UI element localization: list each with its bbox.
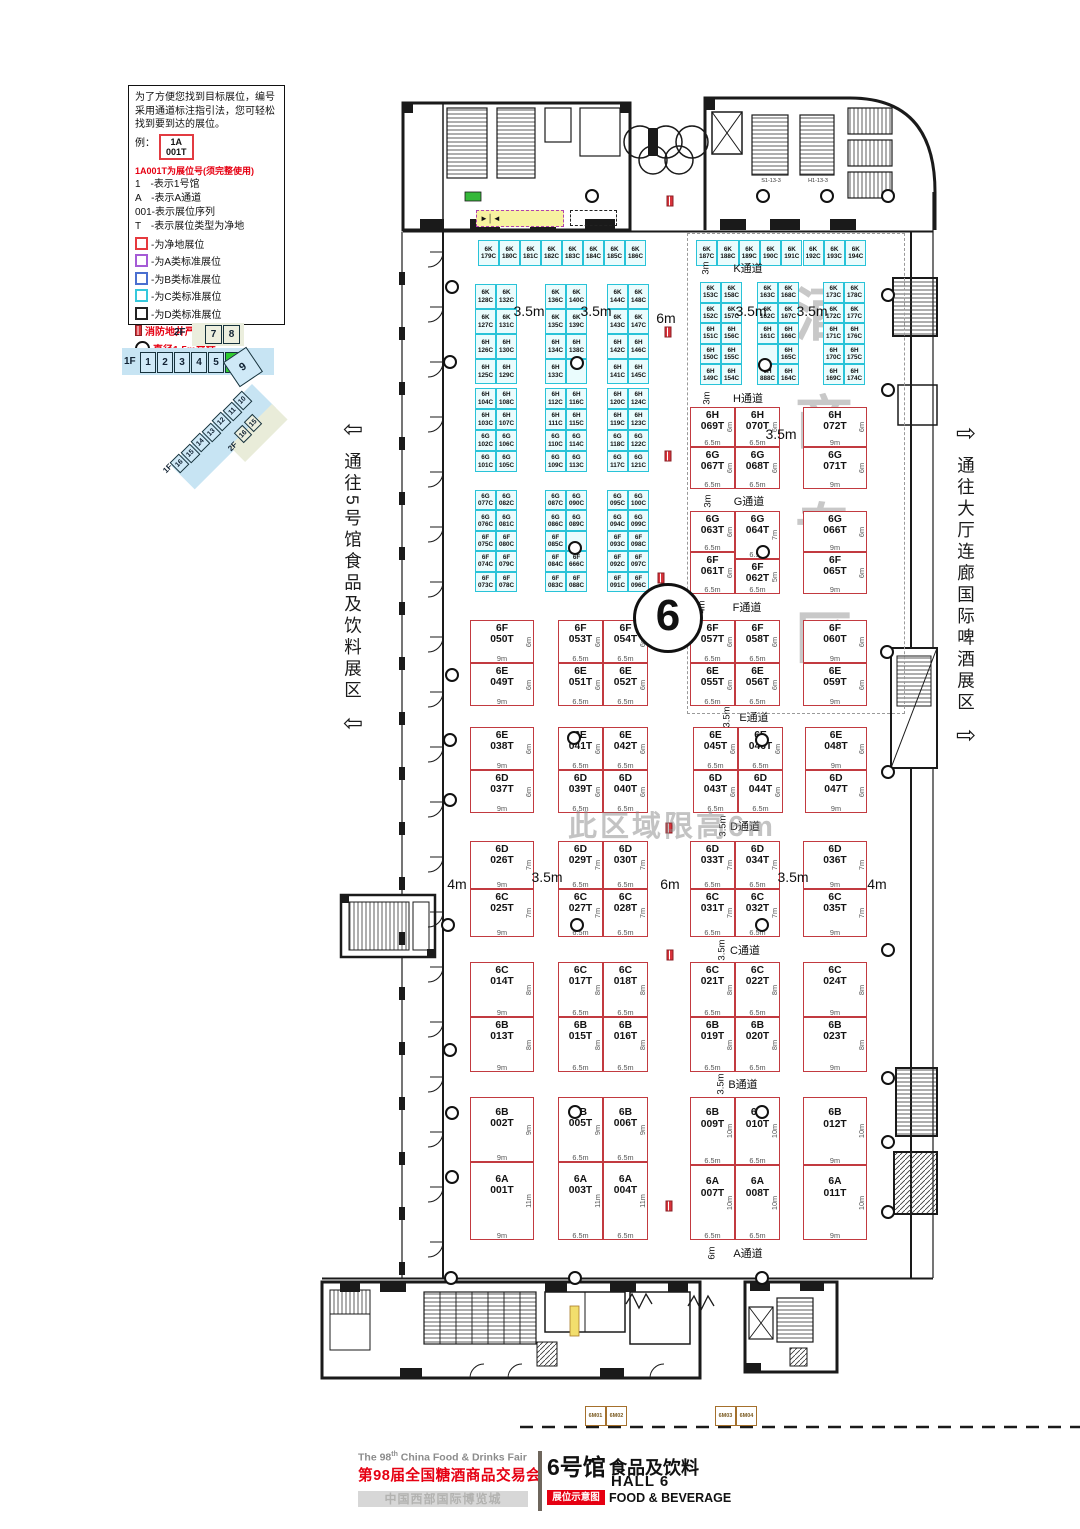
booth-126C: 6H126C xyxy=(475,334,496,359)
booth-123C: 6H123C xyxy=(628,409,649,430)
booth-125C: 6H125C xyxy=(475,359,496,384)
booth-075C: 6F075C xyxy=(475,531,496,551)
booth-118C: 6G118C xyxy=(607,430,628,451)
booth-022T: 6C022T6.5m8m xyxy=(735,962,780,1017)
legend-item: T -表示展位类型为净地 xyxy=(135,220,278,233)
booth-095C: 6G095C xyxy=(607,490,628,510)
booth-116C: 6H116C xyxy=(566,388,587,409)
booth-037T: 6D037T9m6m xyxy=(470,770,534,813)
pillar-column xyxy=(881,1071,895,1085)
fire-hydrant-icon xyxy=(667,196,674,207)
pillar-column xyxy=(568,1105,582,1119)
pillar-column xyxy=(568,541,582,555)
arrow-right-icon: ⇨ xyxy=(956,724,976,748)
legend-example-number: 001T xyxy=(166,147,187,157)
nav-hall-3: 3 xyxy=(174,352,190,373)
dimension-label: 3.5m xyxy=(777,869,808,885)
aisle-label-A通道: A通道 xyxy=(733,1245,762,1261)
legend-item: 1 -表示1号馆 xyxy=(135,178,278,191)
booth-108C: 6H108C xyxy=(496,388,517,409)
pillar-column xyxy=(567,731,581,745)
booth-129C: 6H129C xyxy=(496,359,517,384)
booth-186C: 6K186C xyxy=(625,240,646,266)
booth-077C: 6G077C xyxy=(475,490,496,510)
hall-title-cn: 6号馆 xyxy=(547,1448,606,1482)
arrow-left-icon: ⇦ xyxy=(343,712,363,736)
height-limit-watermark: 此区域限高6m xyxy=(568,803,776,845)
booth-024T: 6C024T9m8m xyxy=(803,962,867,1017)
booth-030T: 6D030T6.5m7m xyxy=(603,841,648,889)
aisle-width-label: 3.5m xyxy=(716,1073,727,1094)
swatch-label: -为A类标准展位 xyxy=(151,253,221,268)
hall-category-en: FOOD & BEVERAGE xyxy=(609,1491,731,1505)
booth-128C: 6K128C xyxy=(475,284,496,309)
booth-136C: 6K136C xyxy=(545,284,566,309)
booth-103C: 6H103C xyxy=(475,409,496,430)
booth-145C: 6H145C xyxy=(628,359,649,384)
booth-082C: 6G082C xyxy=(496,490,517,510)
booth-148C: 6K148C xyxy=(628,284,649,309)
booth-002T: 6B002T9m9m xyxy=(470,1097,534,1162)
booth-183C: 6K183C xyxy=(562,240,583,266)
booth-047T: 6D047T9m6m xyxy=(805,770,867,813)
arrow-right-icon: ⇨ xyxy=(956,422,976,446)
pillar-column xyxy=(820,189,834,203)
booth-028T: 6C028T6.5m7m xyxy=(603,889,648,937)
booth-036T: 6D036T9m7m xyxy=(803,841,867,889)
booth-007T: 6A007T6.5m10m xyxy=(690,1165,735,1240)
booth-092C: 6F092C xyxy=(607,551,628,571)
legend-swatch-row: -为C类标准展位 xyxy=(135,288,278,303)
corridor-label-right: ⇨ 通往大厅连廊国际啤酒展区 ⇨ xyxy=(948,422,984,748)
dimension-label: 3.5m xyxy=(580,303,611,319)
booth-181C: 6K181C xyxy=(520,240,541,266)
nav-2f-label: 2F xyxy=(174,327,186,338)
pillar-column xyxy=(445,668,459,682)
booth-105C: 6G105C xyxy=(496,451,517,472)
booth-101C: 6G101C xyxy=(475,451,496,472)
pillar-column xyxy=(570,356,584,370)
booth-111C: 6H111C xyxy=(545,409,566,430)
booth-096C: 6F096C xyxy=(628,572,649,592)
booth-120C: 6H120C xyxy=(607,388,628,409)
corridor-right-text: 通往大厅连廊国际啤酒展区 xyxy=(954,456,979,714)
fire-hydrant-icon xyxy=(666,1201,673,1212)
pillar-column xyxy=(441,918,455,932)
booth-099C: 6G099C xyxy=(628,510,649,530)
fire-hydrant-icon xyxy=(658,573,665,584)
booth-085C: 6F085C xyxy=(545,531,566,551)
floorplan-page: ►│◄ 6K179C6K180C6K181C6K182C6K183C6K184C… xyxy=(0,0,1080,1529)
pillar-column xyxy=(756,189,770,203)
nav-hall-5: 5 xyxy=(208,352,224,373)
dashed-strip xyxy=(570,210,617,226)
booth-109C: 6G109C xyxy=(545,451,566,472)
nav-hall-2: 2 xyxy=(157,352,173,373)
pillar-column xyxy=(443,733,457,747)
footer: The 98th China Food & Drinks Fair 第98届全国… xyxy=(0,1445,1080,1525)
booth-020T: 6B020T6.5m8m xyxy=(735,1017,780,1072)
booth-100C: 6G100C xyxy=(628,490,649,510)
booth-033T: 6D033T6.5m7m xyxy=(690,841,735,889)
pillar-column xyxy=(445,1106,459,1120)
booth-019T: 6B019T6.5m8m xyxy=(690,1017,735,1072)
pillar-column xyxy=(755,1105,769,1119)
booth-089C: 6G089C xyxy=(566,510,587,530)
booth-146C: 6H146C xyxy=(628,334,649,359)
fire-hydrant-icon xyxy=(665,327,672,338)
booth-031T: 6C031T6.5m7m xyxy=(690,889,735,937)
dimension-label: 4m xyxy=(867,876,886,892)
pillar-column xyxy=(881,1205,895,1219)
booth-003T: 6A003T6.5m11m xyxy=(558,1162,603,1240)
booth-113C: 6G113C xyxy=(566,451,587,472)
booth-107C: 6H107C xyxy=(496,409,517,430)
booth-014T: 6C014T9m8m xyxy=(470,962,534,1017)
pillar-column xyxy=(445,280,459,294)
booth-029T: 6D029T6.5m7m xyxy=(558,841,603,889)
nav-hall-8: 8 xyxy=(223,325,240,344)
booth-009T: 6B009T6.5m10m xyxy=(690,1097,735,1165)
swatch-label: -为C类标准展位 xyxy=(151,288,222,303)
aisle-label-C通道: C通道 xyxy=(730,942,760,958)
pillar-column xyxy=(881,943,895,957)
booth-026T: 6D026T9m7m xyxy=(470,841,534,889)
legend-swatch-row: -为A类标准展位 xyxy=(135,253,278,268)
legend-swatch-row: -为D类标准展位 xyxy=(135,306,278,321)
booth-004T: 6A004T6.5m11m xyxy=(603,1162,648,1240)
booth-015T: 6B015T6.5m8m xyxy=(558,1017,603,1072)
corridor-label-left: ⇦ 通往5号馆食品及饮料展区 ⇦ xyxy=(336,418,370,736)
hall-title-en: HALL 6 xyxy=(611,1473,669,1490)
booth-119C: 6H119C xyxy=(607,409,628,430)
booth-184C: 6K184C xyxy=(583,240,604,266)
dimension-label: 3.5m xyxy=(531,869,562,885)
service-box-6M03: 6M03 xyxy=(715,1406,736,1426)
stairwell-code: H1-13-3 xyxy=(808,178,828,184)
legend-items: 1 -表示1号馆A -表示A通道001-表示展位序列T -表示展位类型为净地 xyxy=(129,178,284,233)
legend-swatch-row: -为净地展位 xyxy=(135,236,278,251)
booth-type-swatch xyxy=(135,237,148,250)
booth-180C: 6K180C xyxy=(499,240,520,266)
pillar-column xyxy=(755,733,769,747)
booth-083C: 6F083C xyxy=(545,572,566,592)
hall-number-circle: 6 xyxy=(633,583,703,653)
booth-114C: 6G114C xyxy=(566,430,587,451)
service-box-6M01: 6M01 xyxy=(585,1406,606,1426)
booth-type-swatch xyxy=(135,307,148,320)
plan-type-badge: 展位示意图 xyxy=(547,1490,605,1505)
booth-110C: 6G110C xyxy=(545,430,566,451)
booth-021T: 6C021T6.5m8m xyxy=(690,962,735,1017)
booth-051T: 6E051T6.5m6m xyxy=(558,663,603,706)
legend-example-hall: 1A xyxy=(171,137,183,147)
booth-035T: 6C035T9m7m xyxy=(803,889,867,937)
booth-098C: 6F098C xyxy=(628,531,649,551)
booth-080C: 6F080C xyxy=(496,531,517,551)
legend-swatches: -为净地展位-为A类标准展位-为B类标准展位-为C类标准展位-为D类标准展位 xyxy=(129,236,284,321)
booth-185C: 6K185C xyxy=(604,240,625,266)
pillar-column xyxy=(443,355,457,369)
booth-182C: 6K182C xyxy=(541,240,562,266)
booth-127C: 6K127C xyxy=(475,309,496,334)
pillar-column xyxy=(568,1271,582,1285)
legend-item: A -表示A通道 xyxy=(135,192,278,205)
legend-example-label: 例： xyxy=(135,134,155,149)
stairwell-code: S1-13-3 xyxy=(761,178,781,184)
booth-179C: 6K179C xyxy=(478,240,499,266)
booth-122C: 6G122C xyxy=(628,430,649,451)
booth-091C: 6F091C xyxy=(607,572,628,592)
pillar-column xyxy=(443,1043,457,1057)
booth-045T: 6E045T6.5m6m xyxy=(693,727,738,770)
booth-053T: 6F053T6.5m6m xyxy=(558,620,603,663)
booth-147C: 6K147C xyxy=(628,309,649,334)
swatch-label: -为B类标准展位 xyxy=(151,271,221,286)
booth-001T: 6A001T9m11m xyxy=(470,1162,534,1240)
aisle-width-label: 6m xyxy=(707,1246,718,1259)
fire-hydrant-icon xyxy=(667,950,674,961)
booth-017T: 6C017T6.5m8m xyxy=(558,962,603,1017)
booth-121C: 6G121C xyxy=(628,451,649,472)
hall-navigator: 2F 1F 7812345691011121314151615161F2F xyxy=(118,320,298,485)
booth-013T: 6B013T9m8m xyxy=(470,1017,534,1072)
booth-type-swatch xyxy=(135,289,148,302)
nav-hall-7: 7 xyxy=(205,325,222,344)
fire-hydrant-icon xyxy=(665,451,672,462)
booth-117C: 6G117C xyxy=(607,451,628,472)
service-box-6M02: 6M02 xyxy=(606,1406,627,1426)
booth-052T: 6E052T6.5m6m xyxy=(603,663,648,706)
legend-panel: 为了方便您找到目标展位，编号采用通道标注指引法，您可轻松找到要到达的展位。 例：… xyxy=(128,85,285,325)
booth-141C: 6H141C xyxy=(607,359,628,384)
booth-type-swatch xyxy=(135,272,148,285)
booth-050T: 6F050T9m6m xyxy=(470,620,534,663)
booth-135C: 6K135C xyxy=(545,309,566,334)
booth-130C: 6H130C xyxy=(496,334,517,359)
booth-081C: 6G081C xyxy=(496,510,517,530)
booth-088C: 6F088C xyxy=(566,572,587,592)
booth-079C: 6F079C xyxy=(496,551,517,571)
booth-018T: 6C018T6.5m8m xyxy=(603,962,648,1017)
booth-006T: 6B006T6.5m9m xyxy=(603,1097,648,1162)
legend-swatch-row: -为B类标准展位 xyxy=(135,271,278,286)
booth-078C: 6F078C xyxy=(496,572,517,592)
pillar-column xyxy=(881,1135,895,1149)
booth-048T: 6E048T9m6m xyxy=(805,727,867,770)
booth-034T: 6D034T6.5m7m xyxy=(735,841,780,889)
arrow-left-icon: ⇦ xyxy=(343,418,363,442)
booth-090C: 6G090C xyxy=(566,490,587,510)
nav-hall-4: 4 xyxy=(191,352,207,373)
pillar-column xyxy=(755,918,769,932)
aisle-label-B通道: B通道 xyxy=(728,1076,757,1092)
booth-142C: 6H142C xyxy=(607,334,628,359)
booth-124C: 6H124C xyxy=(628,388,649,409)
pillar-column xyxy=(755,1271,769,1285)
swatch-label: -为净地展位 xyxy=(151,236,204,251)
booth-012T: 6B012T9m10m xyxy=(803,1097,867,1165)
booth-084C: 6F084C xyxy=(545,551,566,571)
booth-106C: 6G106C xyxy=(496,430,517,451)
pillar-column xyxy=(570,918,584,932)
pillar-column xyxy=(445,1170,459,1184)
booth-115C: 6H115C xyxy=(566,409,587,430)
fair-title-en: The 98th China Food & Drinks Fair xyxy=(358,1451,548,1464)
booth-074C: 6F074C xyxy=(475,551,496,571)
booth-025T: 6C025T9m7m xyxy=(470,889,534,937)
booth-094C: 6G094C xyxy=(607,510,628,530)
booth-097C: 6F097C xyxy=(628,551,649,571)
booth-087C: 6G087C xyxy=(545,490,566,510)
booth-104C: 6H104C xyxy=(475,388,496,409)
legend-example-booth: 1A 001T xyxy=(159,134,194,161)
booth-011T: 6A011T9m10m xyxy=(803,1165,867,1240)
swatch-label: -为D类标准展位 xyxy=(151,306,222,321)
service-box-6M04: 6M04 xyxy=(736,1406,757,1426)
booth-134C: 6H134C xyxy=(545,334,566,359)
booth-016T: 6B016T6.5m8m xyxy=(603,1017,648,1072)
pillar-column xyxy=(881,189,895,203)
dimension-label: 6m xyxy=(660,876,679,892)
booth-type-swatch xyxy=(135,254,148,267)
nav-1f-label: 1F xyxy=(124,356,136,367)
legend-booth-note: 1A001T为展位号(须完整使用) xyxy=(135,164,278,177)
dimension-label: 4m xyxy=(447,876,466,892)
fair-title-cn: 第98届全国糖酒商品交易会 xyxy=(358,1464,541,1485)
service-counter-strip: ►│◄ xyxy=(476,210,564,227)
corridor-left-text: 通往5号馆食品及饮料展区 xyxy=(341,452,366,702)
legend-item: 001-表示展位序列 xyxy=(135,206,278,219)
pillar-column xyxy=(443,793,457,807)
booth-038T: 6E038T9m6m xyxy=(470,727,534,770)
pillar-column xyxy=(585,189,599,203)
booth-008T: 6A008T6.5m10m xyxy=(735,1165,780,1240)
wine-merchant-zone-outline xyxy=(687,233,905,714)
booth-093C: 6F093C xyxy=(607,531,628,551)
booth-041T: 6E041T6.5m6m xyxy=(558,727,603,770)
nav-hall-1: 1 xyxy=(140,352,156,373)
aisle-width-label: 3.5m xyxy=(717,939,728,960)
dimension-label: 3.5m xyxy=(513,303,544,319)
booth-133C: 6H133C xyxy=(545,359,566,384)
footer-divider xyxy=(538,1451,542,1511)
booth-086C: 6G086C xyxy=(545,510,566,530)
legend-intro: 为了方便您找到目标展位，编号采用通道标注指引法，您可轻松找到要到达的展位。 xyxy=(135,91,278,132)
booth-073C: 6F073C xyxy=(475,572,496,592)
booth-112C: 6H112C xyxy=(545,388,566,409)
dimension-label: 6m xyxy=(656,310,675,326)
pillar-column xyxy=(881,765,895,779)
pillar-column xyxy=(444,1271,458,1285)
booth-049T: 6E049T9m6m xyxy=(470,663,534,706)
booth-076C: 6G076C xyxy=(475,510,496,530)
booth-042T: 6E042T6.5m6m xyxy=(603,727,648,770)
booth-102C: 6G102C xyxy=(475,430,496,451)
booth-023T: 6B023T9m8m xyxy=(803,1017,867,1072)
venue-name: 中国西部国际博览城 xyxy=(358,1491,528,1507)
